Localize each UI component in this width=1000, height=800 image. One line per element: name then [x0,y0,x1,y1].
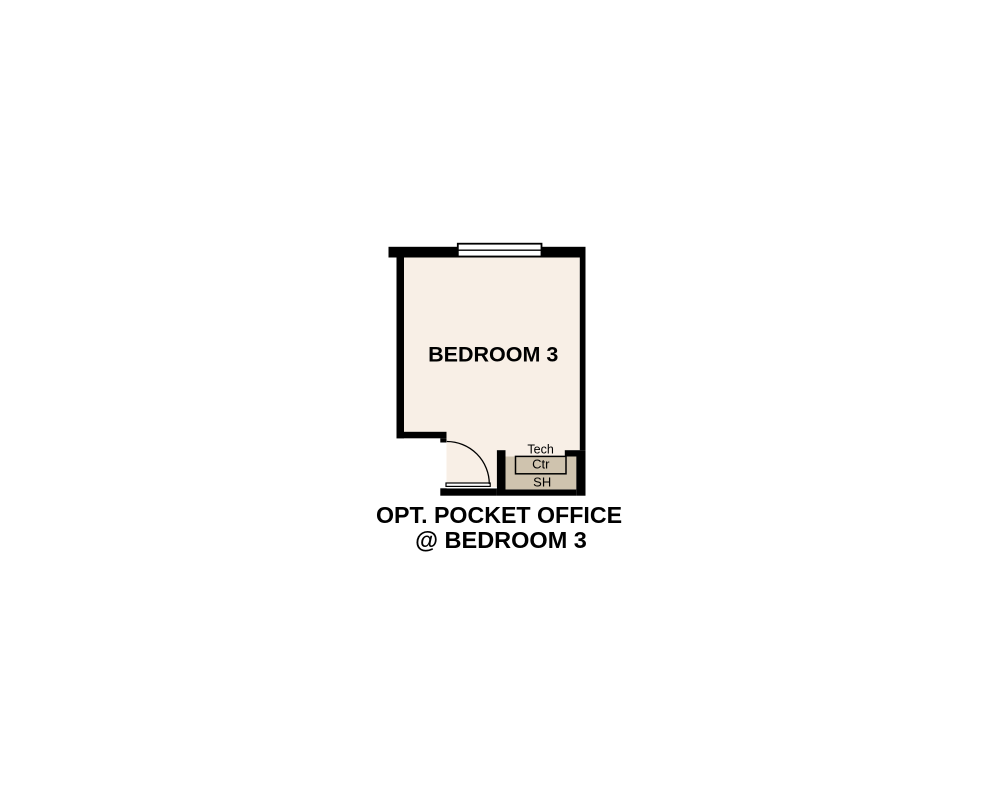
svg-text:BEDROOM 3: BEDROOM 3 [428,342,558,366]
svg-text:SH: SH [533,475,551,490]
svg-text:Tech: Tech [527,443,553,457]
svg-text:OPT. POCKET OFFICE: OPT. POCKET OFFICE [376,502,622,528]
svg-text:@ BEDROOM 3: @ BEDROOM 3 [415,527,587,553]
svg-text:Ctr: Ctr [532,456,550,471]
